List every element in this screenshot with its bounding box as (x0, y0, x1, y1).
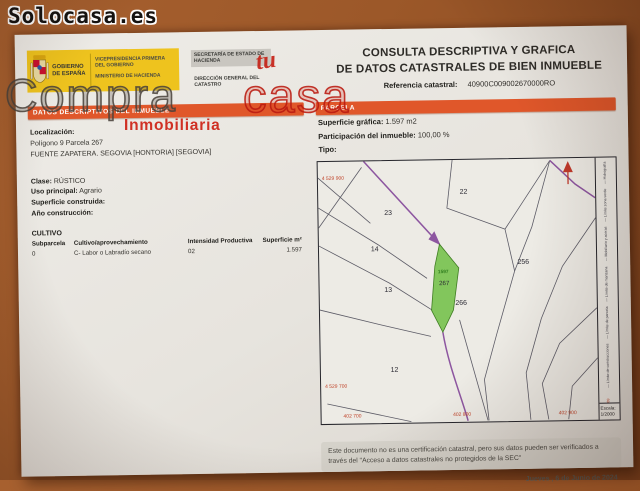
legend-entry: — Límite zona verde (604, 188, 608, 221)
parcel-label-13: 13 (384, 286, 392, 293)
cadastral-map: 22 23 14 13 12 256 266 267 1597 4 529 90… (317, 156, 621, 425)
inmobiliaria-watermark: Inmobiliaria (124, 117, 221, 135)
parcel-label-12: 12 (391, 366, 399, 373)
parcel-area-label: 1597 (438, 269, 449, 275)
cadastral-reference: Referencia catastral: 40900C009002670000… (323, 77, 615, 91)
parcel-label-267: 267 (439, 280, 450, 287)
tipo-row: Tipo: (316, 140, 616, 155)
vicepresidencia-label: VICEPRESIDENCIA PRIMERA DEL GOBIERNO (95, 55, 176, 69)
tipo-label: Tipo: (318, 145, 336, 154)
boundary-line (550, 159, 595, 198)
boundary-line (443, 331, 468, 420)
map-scale-box: Escala: 1/2000 (599, 402, 619, 419)
parcel-line (320, 308, 431, 338)
property-attributes-block: Clase: RÚSTICO Uso principal: Agrario Su… (29, 173, 306, 221)
parcel-label-23: 23 (384, 209, 392, 216)
utm-coord-bottom-3: 402 900 (559, 410, 577, 416)
parcel-label-266: 266 (455, 299, 467, 306)
parcel-map-drawing: 22 23 14 13 12 256 266 267 1597 4 529 90… (318, 157, 599, 423)
parcela-section: PARCELA Superficie gráfica: 1.597 m2 Par… (316, 97, 622, 486)
parcel-line (524, 217, 599, 419)
boundary-line (363, 160, 439, 245)
parcel-line (513, 160, 552, 271)
compratucasa-logo-compra: Compra (5, 70, 177, 122)
map-legend-strip: — Hidrografía — Límite zona verde --- Mo… (595, 157, 620, 419)
legend-entry: --- Mobiliario y aceras (605, 227, 609, 262)
parcel-label-256: 256 (517, 258, 529, 265)
certification-note: Este documento no es una certificación c… (321, 437, 621, 472)
uso-label: Uso principal: (31, 188, 78, 196)
document-columns: DATOS DESCRIPTIVOS DEL INMUEBLE Localiza… (28, 97, 622, 490)
uso-value: Agrario (79, 188, 102, 195)
utm-coord-bottom-left: 4 529 700 (325, 383, 347, 389)
participacion-label: Participación del inmueble: (318, 130, 416, 141)
col-cultivo: Cultivo/aprovechamiento (74, 238, 174, 247)
cell-subparcela: 0 (32, 250, 74, 258)
parcel-line (327, 402, 411, 422)
legend-entry: — Límite de manzana (605, 266, 610, 301)
col-intensidad: Intensidad Productiva (174, 237, 254, 245)
utm-coord-bottom-1: 402 700 (343, 413, 361, 419)
parcel-label-14: 14 (371, 246, 379, 253)
clase-value: RÚSTICO (54, 177, 86, 184)
compratucasa-logo-tu: tu (254, 47, 278, 77)
scale-value: 1/2000 (601, 411, 619, 417)
reference-label: Referencia catastral: (384, 80, 458, 90)
clase-label: Clase: (31, 178, 52, 185)
legend-entry: — Límite de construcciones (607, 343, 612, 387)
reference-value: 40900C009002670000RO (467, 78, 555, 88)
solocasa-site-watermark: Solocasa.es (8, 4, 158, 28)
document-title-block: CONSULTA DESCRIPTIVA Y GRAFICA DE DATOS … (323, 41, 616, 91)
cell-cultivo: C- Labor o Labradío secano (74, 248, 174, 257)
parcel-line (318, 177, 371, 224)
parcel-line (482, 229, 517, 420)
superficie-grafica-value: 1.597 m2 (385, 117, 416, 126)
datos-descriptivos-section: DATOS DESCRIPTIVOS DEL INMUEBLE Localiza… (28, 102, 310, 490)
legend-entry: — Límite de parcela (606, 306, 610, 338)
highlighted-parcel-267 (430, 243, 459, 331)
legend-entry: — Hidrografía (604, 161, 608, 183)
parcel-label-22: 22 (460, 188, 468, 195)
col-superficie: Superficie m² (254, 236, 306, 244)
participacion-value: 100,00 % (418, 130, 450, 139)
parcel-line (319, 244, 433, 312)
parcel-line (318, 206, 427, 280)
cultivo-table-header: Subparcela Cultivo/aprovechamiento Inten… (30, 236, 306, 247)
compratucasa-logo-casa: casa (243, 68, 350, 123)
cell-superficie: 1.597 (254, 246, 306, 254)
cell-intensidad: 02 (174, 247, 254, 255)
cultivo-table-row: 0 C- Labor o Labradío secano 02 1.597 (30, 246, 306, 257)
parcela-section-header: PARCELA (316, 97, 616, 115)
participacion-row: Participación del inmueble: 100,00 % (316, 127, 616, 142)
document-date: Jueves , 6 de Junio de 2024 (322, 474, 622, 486)
superficie-grafica-row: Superficie gráfica: 1.597 m2 (316, 113, 616, 128)
cultivo-title: CULTIVO (30, 226, 306, 237)
col-subparcela: Subparcela (32, 240, 74, 248)
parcel-line (541, 307, 599, 419)
utm-coord-bottom-2: 402 800 (453, 411, 471, 417)
utm-coord-top-left: 4 529 900 (322, 175, 344, 181)
